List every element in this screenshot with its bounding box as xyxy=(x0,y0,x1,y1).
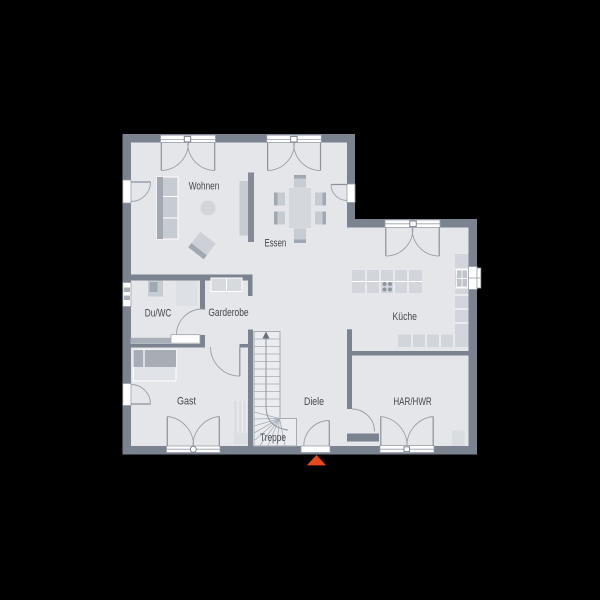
svg-text:Essen: Essen xyxy=(265,238,287,250)
svg-text:Treppe: Treppe xyxy=(260,432,286,444)
svg-text:Du/WC: Du/WC xyxy=(145,307,172,319)
svg-text:Wohnen: Wohnen xyxy=(189,181,220,193)
svg-text:HAR/HWR: HAR/HWR xyxy=(393,396,431,408)
svg-text:Diele: Diele xyxy=(304,396,324,408)
svg-text:Gast: Gast xyxy=(177,395,197,407)
svg-text:Garderobe: Garderobe xyxy=(208,307,248,319)
svg-text:Küche: Küche xyxy=(393,311,418,323)
